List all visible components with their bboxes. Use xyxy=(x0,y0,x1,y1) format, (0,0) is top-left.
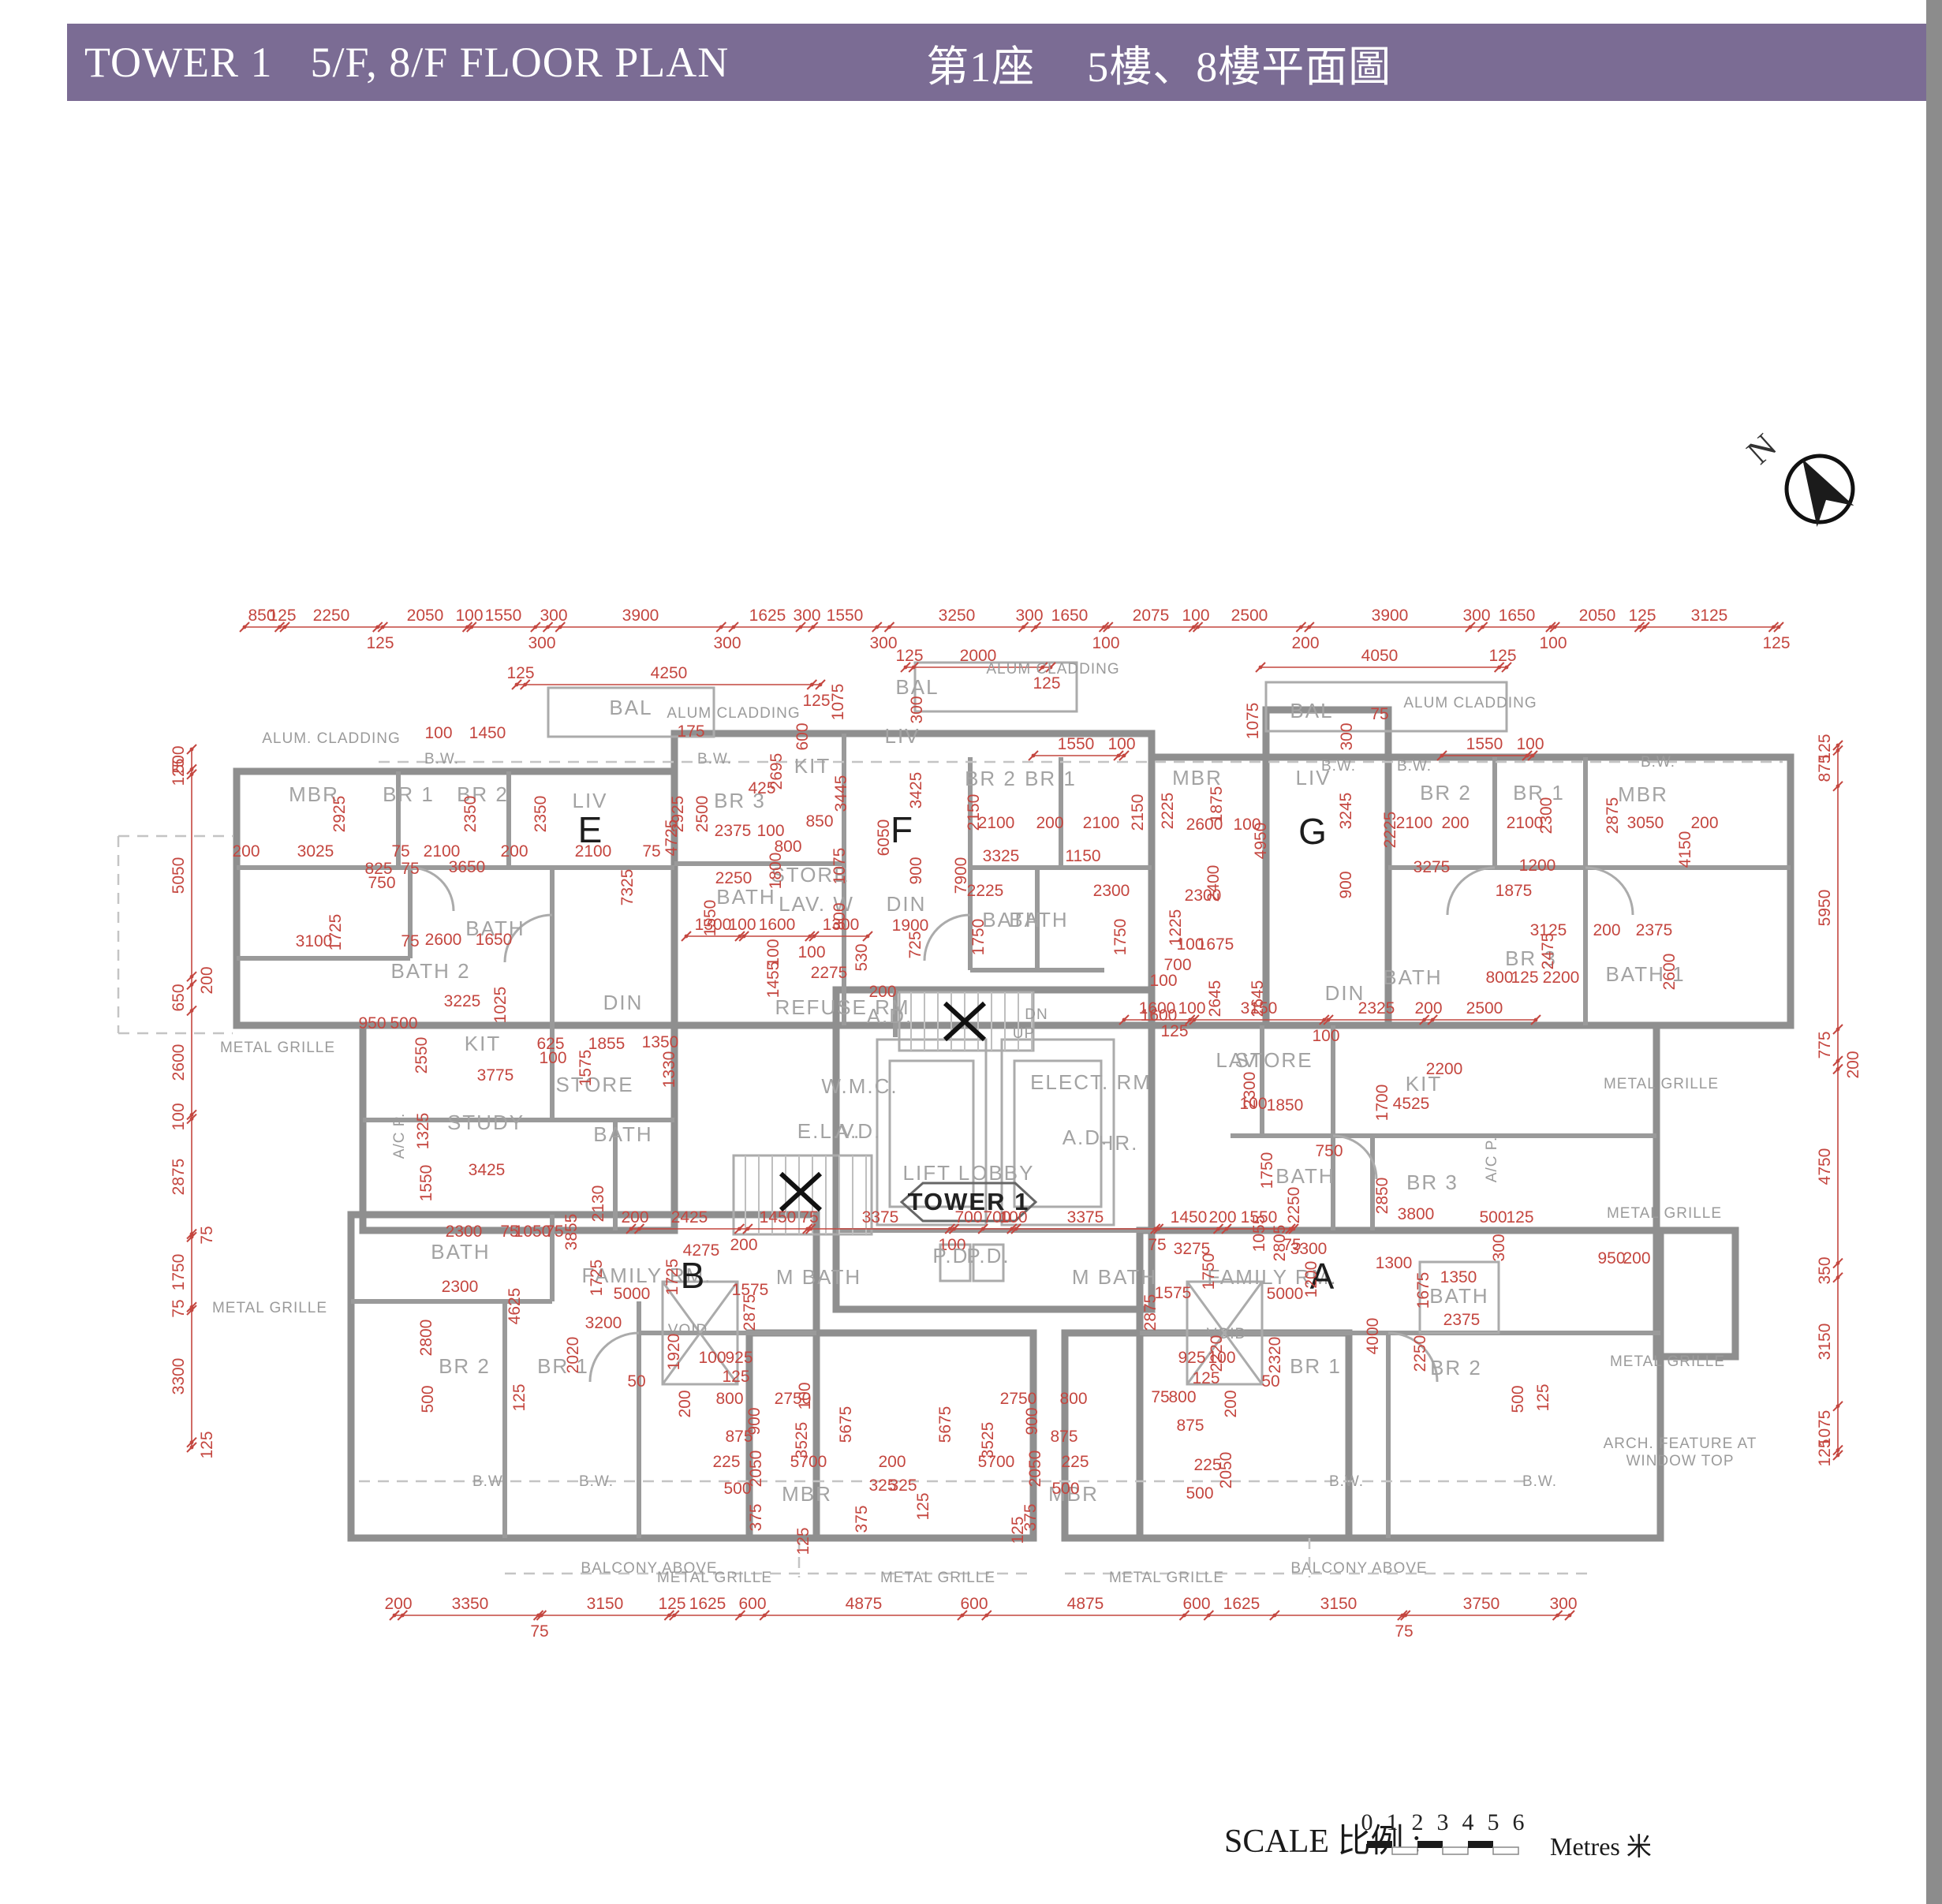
room-label: BATH xyxy=(1275,1164,1335,1188)
dim-label: 1650 xyxy=(476,931,513,949)
dim-label: 1055 xyxy=(1250,1215,1268,1253)
dim-row-label: 650 xyxy=(170,984,188,1011)
room-label: MBR xyxy=(1172,766,1223,790)
floor-plan-drawing: TOWER 1 N SCALE 比例 : 0123456 Metres 米 85… xyxy=(0,0,1942,1904)
dim-row-label: 200 xyxy=(730,1236,757,1254)
scale-tick-label: 1 xyxy=(1387,1809,1399,1835)
dim-label: 3275 xyxy=(1414,858,1451,876)
dim-label: 125 xyxy=(1160,1022,1188,1040)
dim-label: 1675 xyxy=(1414,1272,1432,1309)
dim-label: 2050 xyxy=(1026,1450,1044,1488)
annotation-label: WINDOW TOP xyxy=(1626,1453,1734,1469)
annotation-label: B.W. xyxy=(1397,758,1432,775)
dim-label: 3425 xyxy=(469,1161,506,1179)
dim-row-label: 75 xyxy=(170,1299,188,1317)
room-label: LIV xyxy=(884,724,920,748)
dim-row-label: 4875 xyxy=(1067,1595,1104,1613)
dim-row-label: 5950 xyxy=(1816,890,1834,927)
dim-row-label: 300 xyxy=(713,634,741,652)
dim-label: 200 xyxy=(1690,814,1718,832)
dim-label: 5000 xyxy=(1267,1285,1304,1303)
dim-label: 3050 xyxy=(1627,814,1664,832)
dim-label: 425 xyxy=(748,779,775,797)
room-label: A.D. xyxy=(867,1004,913,1028)
annotation-label: UP xyxy=(1013,1025,1035,1042)
dim-label: 1450 xyxy=(469,724,506,742)
annotation-label: ALUM. CLADDING xyxy=(262,730,401,747)
dim-label: 925 xyxy=(1178,1349,1205,1367)
unit-label: G xyxy=(1298,811,1327,852)
dim-row-label: 1625 xyxy=(749,607,786,625)
dim-label: 800 xyxy=(1059,1390,1087,1408)
dim-label: 200 xyxy=(676,1390,694,1417)
dim-row-label: 1625 xyxy=(689,1595,726,1613)
dim-row-label: 75 xyxy=(530,1622,548,1641)
dim-row-label: 125 xyxy=(802,692,830,710)
dim-label: 2020 xyxy=(564,1337,582,1374)
dimension-row: 1258755950775200475035031501075125 xyxy=(1816,734,1862,1466)
dim-label: 2300 xyxy=(1537,797,1555,834)
floor-plan-page: TOWER 1 5/F, 8/F FLOOR PLAN 第1座 5樓、8樓平面圖 xyxy=(0,0,1942,1904)
annotation-label: METAL GRILLE xyxy=(212,1300,327,1316)
dim-label: 2275 xyxy=(811,964,848,982)
dim-row-label: 3150 xyxy=(587,1595,624,1613)
dim-label: 1150 xyxy=(1065,847,1100,865)
dim-label: 100 xyxy=(539,1049,566,1067)
dim-label: 5675 xyxy=(837,1406,855,1443)
dim-label: 3425 xyxy=(907,772,925,809)
dim-row-label: 75 xyxy=(1395,1622,1413,1641)
dim-label: 125 xyxy=(1506,1208,1533,1226)
dim-row-label: 700 xyxy=(954,1208,982,1226)
dim-label: 200 xyxy=(500,842,528,861)
annotation-label: METAL GRILLE xyxy=(880,1570,995,1586)
dim-row-label: 2050 xyxy=(407,607,444,625)
dim-label: 2750 xyxy=(1000,1390,1037,1408)
dim-label: 100 xyxy=(424,724,452,742)
dim-label: 75 xyxy=(401,932,419,950)
annotation-label: A/C P. xyxy=(391,1113,408,1159)
dim-label: 200 xyxy=(232,842,260,861)
dim-label: 3650 xyxy=(449,858,486,876)
dim-label: 500 xyxy=(1186,1484,1213,1503)
unit-label: B xyxy=(681,1255,705,1296)
dim-row-label: 1550 xyxy=(485,607,522,625)
dim-label: 500 xyxy=(1051,1480,1079,1498)
dim-label: 125 xyxy=(510,1383,528,1411)
scale-tick-label: 3 xyxy=(1437,1809,1449,1835)
dim-row-label: 200 xyxy=(384,1595,412,1613)
dim-label: 2375 xyxy=(1443,1311,1481,1329)
dim-label: 200 xyxy=(1036,814,1063,832)
dim-row-label: 100 xyxy=(999,1208,1027,1226)
dim-label: 5700 xyxy=(790,1453,827,1471)
dimension-row: 8501252250125205010015503003003900300162… xyxy=(240,607,1791,652)
dim-label: 950 xyxy=(358,1014,386,1032)
scale-tick-label: 2 xyxy=(1412,1809,1424,1835)
room-label: STORE xyxy=(1234,1048,1313,1072)
dim-row-label: 75 xyxy=(198,1226,216,1244)
dim-row-label: 200 xyxy=(1208,1208,1236,1226)
dim-label: 1025 xyxy=(491,987,510,1024)
room-label: BR 1 xyxy=(1025,767,1077,790)
dim-row-label: 300 xyxy=(528,634,555,652)
dim-label: 375 xyxy=(853,1505,871,1533)
dim-row-label: 600 xyxy=(960,1595,988,1613)
scale-tick-label: 0 xyxy=(1361,1809,1373,1835)
dim-label: 875 xyxy=(1176,1417,1204,1435)
dim-label: 2225 xyxy=(1381,812,1399,849)
dim-label: 800 xyxy=(715,1390,743,1408)
dim-label: 75 xyxy=(642,842,660,861)
dim-label: 600 xyxy=(794,722,812,750)
dim-label: 1850 xyxy=(1267,1096,1304,1114)
dim-row-label: 100 xyxy=(455,607,483,625)
dim-row-label: 100 xyxy=(1182,607,1209,625)
dim-label: 5000 xyxy=(614,1285,651,1303)
dim-label: 200 xyxy=(1593,921,1620,939)
room-label: BATH xyxy=(431,1240,490,1264)
annotation-label: B.W. xyxy=(697,751,732,767)
dim-row-label: 350 xyxy=(1816,1256,1834,1284)
room-label: BR 3 xyxy=(1406,1170,1458,1194)
dim-label: 2200 xyxy=(1426,1060,1463,1078)
room-label: BAL xyxy=(1290,699,1333,722)
dim-label: 2300 xyxy=(1241,1072,1259,1109)
dim-label: 300 xyxy=(1338,722,1356,750)
dim-label: 850 xyxy=(805,812,833,831)
dim-row-label: 75 xyxy=(1148,1236,1166,1254)
dim-label: 500 xyxy=(1479,1208,1507,1226)
dim-row-label: 125 xyxy=(1488,647,1516,665)
dim-row-label: 3750 xyxy=(1463,1595,1500,1613)
dim-label: 200 xyxy=(878,1453,906,1471)
dim-label: 2925 xyxy=(331,796,349,833)
dim-row-label: 300 xyxy=(793,607,820,625)
dim-label: 2805 xyxy=(1271,1225,1289,1262)
dim-label: 100 xyxy=(1176,935,1204,954)
annotation-label: A/C P. xyxy=(1484,1137,1500,1182)
dim-row-label: 300 xyxy=(1549,1595,1577,1613)
dim-label: 2350 xyxy=(461,796,480,833)
dim-label: 1350 xyxy=(642,1033,679,1051)
dim-label: 500 xyxy=(723,1480,751,1498)
dim-row-label: 300 xyxy=(540,607,567,625)
dimension-row: 1550100 xyxy=(1029,735,1136,760)
scale-tick-label: 6 xyxy=(1513,1809,1525,1835)
dim-row-label: 2500 xyxy=(1466,999,1503,1017)
dim-label: 2320 xyxy=(1266,1337,1284,1374)
dim-row-label: 125 xyxy=(268,607,296,625)
dim-row-label: 200 xyxy=(1291,634,1319,652)
dim-label: 875 xyxy=(1050,1428,1077,1446)
dim-row-label: 1550 xyxy=(1058,735,1095,753)
dim-label: 125 xyxy=(1009,1516,1027,1544)
dim-row-label: 100 xyxy=(1107,735,1135,753)
room-label: BR 2 xyxy=(1430,1356,1482,1379)
dim-row-label: 125 xyxy=(506,664,534,682)
dim-row-label: 100 xyxy=(1178,999,1205,1017)
dim-label: 75 xyxy=(1370,705,1388,723)
dim-label: 1875 xyxy=(1208,786,1226,823)
dim-row-label: 1600 xyxy=(759,916,796,934)
room-label: MBR xyxy=(1618,782,1668,806)
dim-row-label: 600 xyxy=(738,1595,766,1613)
room-label: BR 2 xyxy=(965,767,1017,790)
dim-label: 1750 xyxy=(1200,1253,1218,1290)
dim-row-label: 100 xyxy=(1539,634,1567,652)
dim-label: 925 xyxy=(725,1349,753,1367)
dim-label: 75 xyxy=(401,860,419,878)
dim-label: 125 xyxy=(1192,1369,1219,1387)
dim-label: 3445 xyxy=(832,775,850,812)
dim-row-label: 2425 xyxy=(671,1208,708,1226)
dim-label: 100 xyxy=(1149,972,1177,990)
dim-row-label: 200 xyxy=(621,1208,648,1226)
dim-row-label: 1625 xyxy=(1223,1595,1260,1613)
dim-row-label: 300 xyxy=(869,634,897,652)
dim-row-label: 3350 xyxy=(452,1595,489,1613)
room-label: BAL xyxy=(895,675,939,699)
dim-label: 225 xyxy=(712,1453,740,1471)
dim-label: 6050 xyxy=(875,819,893,857)
room-label: BATH xyxy=(1009,908,1068,931)
dim-row-label: 125 xyxy=(658,1595,685,1613)
dim-label: 100 xyxy=(1208,1349,1235,1367)
dim-label: 3200 xyxy=(585,1314,622,1332)
dim-row-label: 200 xyxy=(1414,999,1442,1017)
dim-label: 1725 xyxy=(327,914,345,951)
room-label: BATH xyxy=(1383,965,1442,989)
dim-label: 2130 xyxy=(589,1185,607,1223)
dim-label: 750 xyxy=(368,874,395,892)
dim-label: 1075 xyxy=(1244,703,1262,740)
dim-row-label: 4750 xyxy=(1816,1148,1834,1185)
dim-label: 875 xyxy=(725,1428,753,1446)
dim-label: 1350 xyxy=(1440,1268,1477,1286)
dim-label: 375 xyxy=(747,1503,765,1531)
room-label: BR 2 xyxy=(1420,781,1472,805)
dim-row-label: 2875 xyxy=(170,1159,188,1196)
dim-label: 1725 xyxy=(588,1260,606,1297)
annotation-label: DN xyxy=(1025,1006,1048,1023)
dim-label: 1075 xyxy=(829,684,847,721)
dim-row-label: 75 xyxy=(800,1208,818,1226)
dim-label: 100 xyxy=(698,1349,726,1367)
room-label: BR 2 xyxy=(439,1354,491,1378)
dim-row-label: 4875 xyxy=(846,1595,883,1613)
dim-label: 4000 xyxy=(1364,1318,1382,1355)
dim-label: 2875 xyxy=(741,1294,759,1331)
dim-row-label: 100 xyxy=(170,1103,188,1130)
dim-label: 225 xyxy=(1061,1453,1089,1471)
dim-row-label: 200 xyxy=(1844,1051,1862,1078)
dim-label: 4725 xyxy=(663,819,681,857)
dim-row-label: 2050 xyxy=(1579,607,1616,625)
dim-label: 2800 xyxy=(417,1320,435,1357)
room-label: W.M.C. xyxy=(821,1074,898,1098)
dim-label: 3800 xyxy=(1398,1205,1435,1223)
dim-label: 2600 xyxy=(1660,954,1679,991)
dim-label: 50 xyxy=(1261,1372,1279,1391)
room-label: BR 1 xyxy=(383,782,435,806)
dim-label: 1300 xyxy=(1376,1254,1413,1272)
dim-row-label: 100 xyxy=(1516,735,1544,753)
room-label: DIN xyxy=(603,991,644,1014)
dim-label: 900 xyxy=(1023,1407,1041,1435)
dim-label: 5675 xyxy=(936,1406,954,1443)
dim-label: 2050 xyxy=(1217,1452,1235,1489)
dim-label: 1920 xyxy=(665,1334,683,1371)
dim-label: 530 xyxy=(853,943,871,971)
dim-label: 500 xyxy=(390,1014,417,1032)
dim-label: 2875 xyxy=(1604,797,1622,834)
dim-label: 75 xyxy=(391,842,409,861)
dim-label: 200 xyxy=(1441,814,1469,832)
dim-label: 2600 xyxy=(425,931,462,949)
dim-label: 2875 xyxy=(1141,1294,1160,1331)
dim-row-label: 1650 xyxy=(1051,607,1089,625)
dim-label: 2100 xyxy=(575,842,612,861)
annotation-label: METAL GRILLE xyxy=(220,1040,335,1056)
dim-row-label: 125 xyxy=(366,634,394,652)
dim-row-label: 1550 xyxy=(1466,735,1503,753)
dim-row-label: 100 xyxy=(1312,1027,1339,1045)
dim-row-label: 875 xyxy=(1816,754,1834,782)
dim-row-label: 125 xyxy=(1762,634,1790,652)
dim-label: 1325 xyxy=(414,1113,432,1150)
dim-row-label: 3375 xyxy=(862,1208,899,1226)
dim-label: 500 xyxy=(419,1385,437,1413)
dim-label: 2850 xyxy=(1373,1178,1391,1215)
room-label: M BATH xyxy=(1072,1265,1157,1289)
room-label: KIT xyxy=(465,1032,501,1055)
dim-label: 125 xyxy=(914,1492,932,1520)
dim-label: 2550 xyxy=(413,1037,431,1074)
dim-row-label: 2075 xyxy=(1133,607,1170,625)
dim-label: 3855 xyxy=(562,1214,581,1251)
dim-label: 325 xyxy=(889,1477,917,1495)
dim-label: 2300 xyxy=(446,1223,483,1241)
annotation-label: B.W. xyxy=(1329,1473,1364,1490)
dim-label: 2225 xyxy=(1159,793,1177,830)
room-label: DIN xyxy=(887,892,927,916)
dim-label: 2645 xyxy=(1206,980,1224,1017)
room-label: P.D. xyxy=(966,1244,1010,1267)
room-label: STORE xyxy=(555,1073,633,1096)
dim-label: 750 xyxy=(1315,1142,1343,1160)
dim-label: 2250 xyxy=(1285,1187,1303,1224)
dim-row-label: 3300 xyxy=(170,1358,188,1395)
dim-row-label: 4050 xyxy=(1361,647,1399,665)
dim-label: 2645 xyxy=(1249,980,1267,1017)
dim-label: 100 xyxy=(796,1382,814,1409)
dim-label: 50 xyxy=(627,1372,645,1391)
dim-label: 2150 xyxy=(1129,794,1147,831)
annotation-label: METAL GRILLE xyxy=(1604,1076,1719,1092)
annotation-label: B.W. xyxy=(579,1473,614,1490)
dim-label: 800 xyxy=(831,902,849,930)
dim-label: 1200 xyxy=(1519,857,1556,875)
annotation-label: B.W. xyxy=(472,1473,507,1490)
dim-row-label: 3900 xyxy=(622,607,659,625)
dim-label: 725 xyxy=(906,931,924,958)
dim-row-label: 3900 xyxy=(1372,607,1409,625)
dim-label: 2475 xyxy=(1539,933,1557,970)
dim-label: 2300 xyxy=(1093,882,1130,900)
room-label: BATH xyxy=(1429,1284,1488,1308)
dim-label: 1575 xyxy=(577,1050,595,1087)
dim-row-label: 1450 xyxy=(760,1208,797,1226)
dim-label: 4150 xyxy=(1676,831,1694,868)
scale-bar-ticks: 0123456 xyxy=(1361,1809,1525,1835)
dim-label: 1550 xyxy=(701,900,719,937)
dim-label: 1075 xyxy=(831,848,849,885)
annotation-label: B.W. xyxy=(1321,758,1356,775)
page-edge-shadow xyxy=(1926,0,1942,1904)
dim-label: 1550 xyxy=(417,1165,435,1202)
dim-label: 2350 xyxy=(532,796,550,833)
dim-label: 1800 xyxy=(767,853,785,890)
room-label: STUDY xyxy=(447,1111,525,1134)
dim-label: 7325 xyxy=(618,869,637,906)
dim-label: 1575 xyxy=(1155,1284,1192,1302)
room-label: BATH xyxy=(593,1122,652,1146)
dim-label: 200 xyxy=(1623,1249,1650,1267)
annotation-label: BALCONY ABOVE xyxy=(581,1560,717,1577)
dim-label: 2200 xyxy=(1543,969,1580,987)
dim-row-label: 300 xyxy=(1015,607,1043,625)
room-label: KIT xyxy=(794,754,831,778)
dim-row-label: 3150 xyxy=(1320,1595,1358,1613)
dim-label: 3025 xyxy=(297,842,334,861)
room-label: MBR xyxy=(782,1482,832,1506)
dim-label: 900 xyxy=(1337,871,1355,898)
annotation-label: ALUM CLADDING xyxy=(1403,695,1537,711)
annotation-label: METAL GRILLE xyxy=(1109,1570,1224,1586)
dim-label: 900 xyxy=(907,857,925,884)
dim-row-label: 3250 xyxy=(939,607,976,625)
north-compass-icon: N xyxy=(1739,426,1854,527)
labels-layer: MBRBR 1BR 2LIVBATHBATH 2DINKITSTORESTUDY… xyxy=(212,661,1757,1586)
dim-label: 1725 xyxy=(663,1259,682,1296)
dim-row-label: 125 xyxy=(1628,607,1656,625)
dimension-row: 2003350753150125162560048756004875600162… xyxy=(384,1595,1577,1641)
annotation-label: ALUM CLADDING xyxy=(667,705,800,722)
dim-row-label: 4250 xyxy=(651,664,688,682)
annotation-label: B.W. xyxy=(1522,1473,1557,1490)
dim-label: 1750 xyxy=(969,919,988,956)
dim-label: 125 xyxy=(794,1527,812,1555)
scale-bar: SCALE 比例 : 0123456 Metres 米 xyxy=(1224,1809,1652,1861)
dim-label: 3300 xyxy=(1290,1240,1328,1258)
dim-label: 4525 xyxy=(1393,1095,1430,1113)
dim-label: 75 xyxy=(1151,1388,1169,1406)
dim-row-label: 300 xyxy=(1462,607,1490,625)
dim-label: 3775 xyxy=(477,1066,514,1085)
dim-label: 2100 xyxy=(978,814,1015,832)
dim-row-label: 100 xyxy=(1092,634,1119,652)
dim-row-label: 775 xyxy=(1816,1031,1834,1058)
dim-label: 2100 xyxy=(1083,814,1120,832)
dim-label: 125 xyxy=(1534,1383,1552,1411)
dim-label: 125 xyxy=(722,1368,749,1386)
dim-row-label: 5050 xyxy=(170,857,188,894)
dim-row-label: 1550 xyxy=(827,607,864,625)
dim-label: 2300 xyxy=(1185,887,1222,905)
annotation-label: BALCONY ABOVE xyxy=(1290,1560,1427,1577)
dim-row-label: 100 xyxy=(728,916,756,934)
